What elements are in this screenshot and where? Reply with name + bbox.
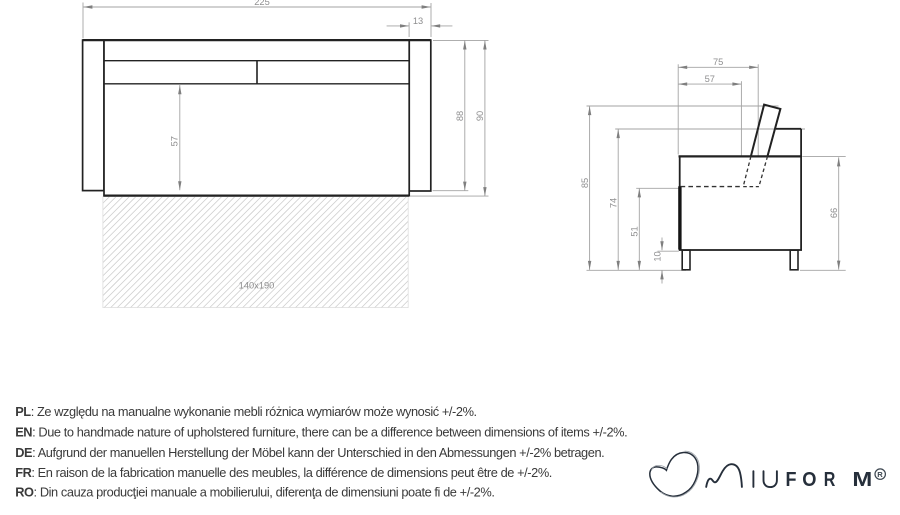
svg-text:R: R xyxy=(877,470,883,479)
svg-text:140x190: 140x190 xyxy=(239,280,275,290)
svg-text:DE: Aufgrund der manuellen Her: DE: Aufgrund der manuellen Herstellung d… xyxy=(15,445,604,460)
svg-text:90: 90 xyxy=(475,111,485,121)
svg-text:O: O xyxy=(802,469,816,491)
svg-text:57: 57 xyxy=(705,74,715,84)
svg-text:225: 225 xyxy=(254,0,270,7)
svg-text:EN: Due to handmade nature of: EN: Due to handmade nature of upholstere… xyxy=(15,425,627,440)
svg-text:R: R xyxy=(824,469,836,491)
svg-text:88: 88 xyxy=(455,111,465,121)
svg-text:75: 75 xyxy=(713,57,723,67)
svg-text:FR: En raison de la fabricatio: FR: En raison de la fabrication manuelle… xyxy=(15,465,552,480)
svg-text:51: 51 xyxy=(630,226,640,236)
svg-text:M: M xyxy=(852,469,872,491)
svg-text:66: 66 xyxy=(829,208,839,218)
svg-text:PL: Ze względu na manualne wyk: PL: Ze względu na manualne wykonanie meb… xyxy=(15,404,477,419)
svg-text:10: 10 xyxy=(652,251,662,261)
svg-text:RO: Din cauza producţiei manua: RO: Din cauza producţiei manuale a mobil… xyxy=(15,484,494,499)
svg-text:13: 13 xyxy=(413,16,423,26)
svg-text:74: 74 xyxy=(608,198,618,208)
svg-text:F: F xyxy=(786,469,797,491)
svg-text:57: 57 xyxy=(170,136,180,146)
svg-text:85: 85 xyxy=(580,178,590,188)
